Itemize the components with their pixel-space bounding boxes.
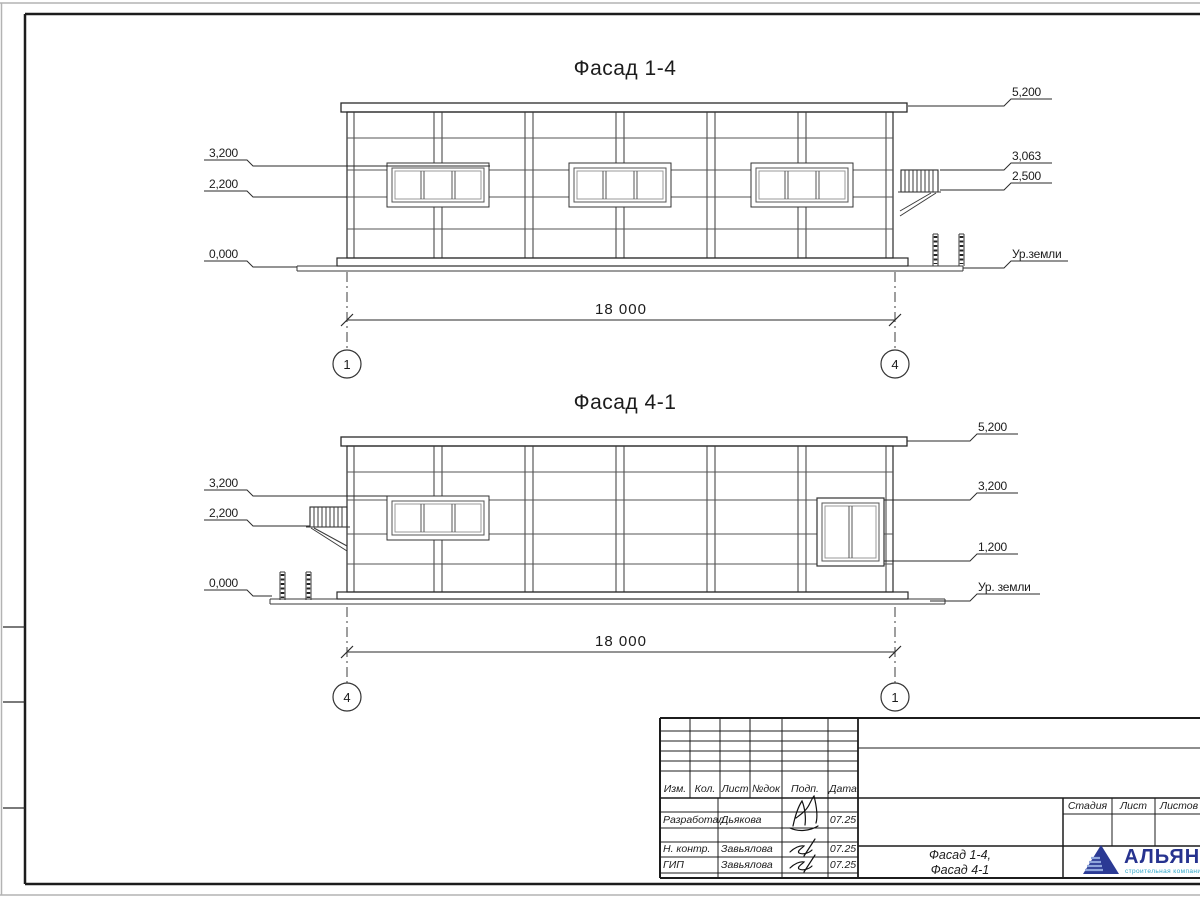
- titleblock-date: 07.25: [828, 859, 858, 871]
- titleblock-col-header: Дата: [828, 783, 858, 795]
- sheet-linework: [0, 0, 1200, 900]
- elevation-mark: 2,200: [200, 506, 247, 520]
- titleblock-role: Н. контр.: [663, 843, 710, 855]
- elevation-mark: 3,200: [978, 479, 1007, 493]
- titleblock-date: 07.25: [828, 814, 858, 826]
- facade1-title: Фасад 1-4: [495, 57, 755, 81]
- alliance-logo-text: АЛЬЯНС: [1124, 846, 1200, 869]
- doc-name-line2: Фасад 4-1: [860, 863, 1060, 878]
- stage-col-header: Стадия: [1063, 800, 1112, 812]
- elevation-mark: 0,000: [200, 576, 247, 590]
- titleblock-col-header: Лист: [720, 783, 750, 795]
- titleblock-name: Завьялова: [721, 859, 773, 871]
- titleblock-col-header: Подп.: [782, 783, 828, 795]
- left-margin-cells: [3, 627, 25, 808]
- window-3pane: [751, 163, 853, 207]
- entrance-posts: [280, 572, 311, 600]
- window-3pane: [387, 496, 489, 540]
- titleblock-role: Разработал: [663, 814, 724, 826]
- alliance-logo-icon: [1083, 845, 1119, 874]
- signatures: [790, 796, 818, 872]
- facade2-title: Фасад 4-1: [495, 391, 755, 415]
- elevation-mark: 5,200: [978, 420, 1007, 434]
- signature-developer: [790, 796, 818, 830]
- stage-col-header: Листов: [1155, 800, 1200, 812]
- elevation-mark: 2,500: [1012, 169, 1041, 183]
- elevation-mark: 3,063: [1012, 149, 1041, 163]
- dimension-text: 18 000: [551, 301, 691, 318]
- titleblock-name: Дьякова: [721, 814, 761, 826]
- axis-label: 1: [885, 690, 905, 705]
- window-2pane: [817, 498, 884, 566]
- canopy: [306, 507, 350, 551]
- drawing-frame: [25, 14, 1200, 884]
- axis-label: 4: [885, 357, 905, 372]
- stage-col-header: Лист: [1112, 800, 1155, 812]
- doc-name-line1: Фасад 1-4,: [860, 848, 1060, 863]
- canopy: [898, 170, 941, 216]
- entrance-posts: [933, 234, 964, 266]
- elevation-mark: 0,000: [200, 247, 247, 261]
- axis-label: 1: [337, 357, 357, 372]
- titleblock-col-header: Кол.: [690, 783, 720, 795]
- facade-4-1-drawing: [204, 434, 1040, 711]
- axis-label: 4: [337, 690, 357, 705]
- doc-name: Фасад 1-4, Фасад 4-1: [860, 848, 1060, 878]
- alliance-logo-subtitle: строительная компания: [1125, 868, 1200, 875]
- titleblock-role: ГИП: [663, 859, 684, 871]
- titleblock-name: Завьялова: [721, 843, 773, 855]
- window-3pane: [387, 163, 489, 207]
- drawing-sheet: Фасад 1-4 3,200 2,200 0,000 5,200 3,063 …: [0, 0, 1200, 900]
- elevation-mark: 3,200: [200, 146, 247, 160]
- dimension-text: 18 000: [551, 633, 691, 650]
- elevation-leaders: [204, 434, 1040, 601]
- ground-level-label: Ур.земли: [1012, 247, 1062, 261]
- ground-level-label: Ур. земли: [978, 580, 1031, 594]
- elevation-mark: 3,200: [200, 476, 247, 490]
- elevation-mark: 2,200: [200, 177, 247, 191]
- signature-gip: [790, 855, 815, 872]
- window-3pane: [569, 163, 671, 207]
- elevation-mark: 1,200: [978, 540, 1007, 554]
- facade-1-4-drawing: [204, 99, 1068, 378]
- titleblock-col-header: Изм.: [660, 783, 690, 795]
- titleblock-date: 07.25: [828, 843, 858, 855]
- paper-edge: [0, 3, 1200, 895]
- titleblock-col-header: №док: [750, 783, 782, 795]
- elevation-mark: 5,200: [1012, 85, 1041, 99]
